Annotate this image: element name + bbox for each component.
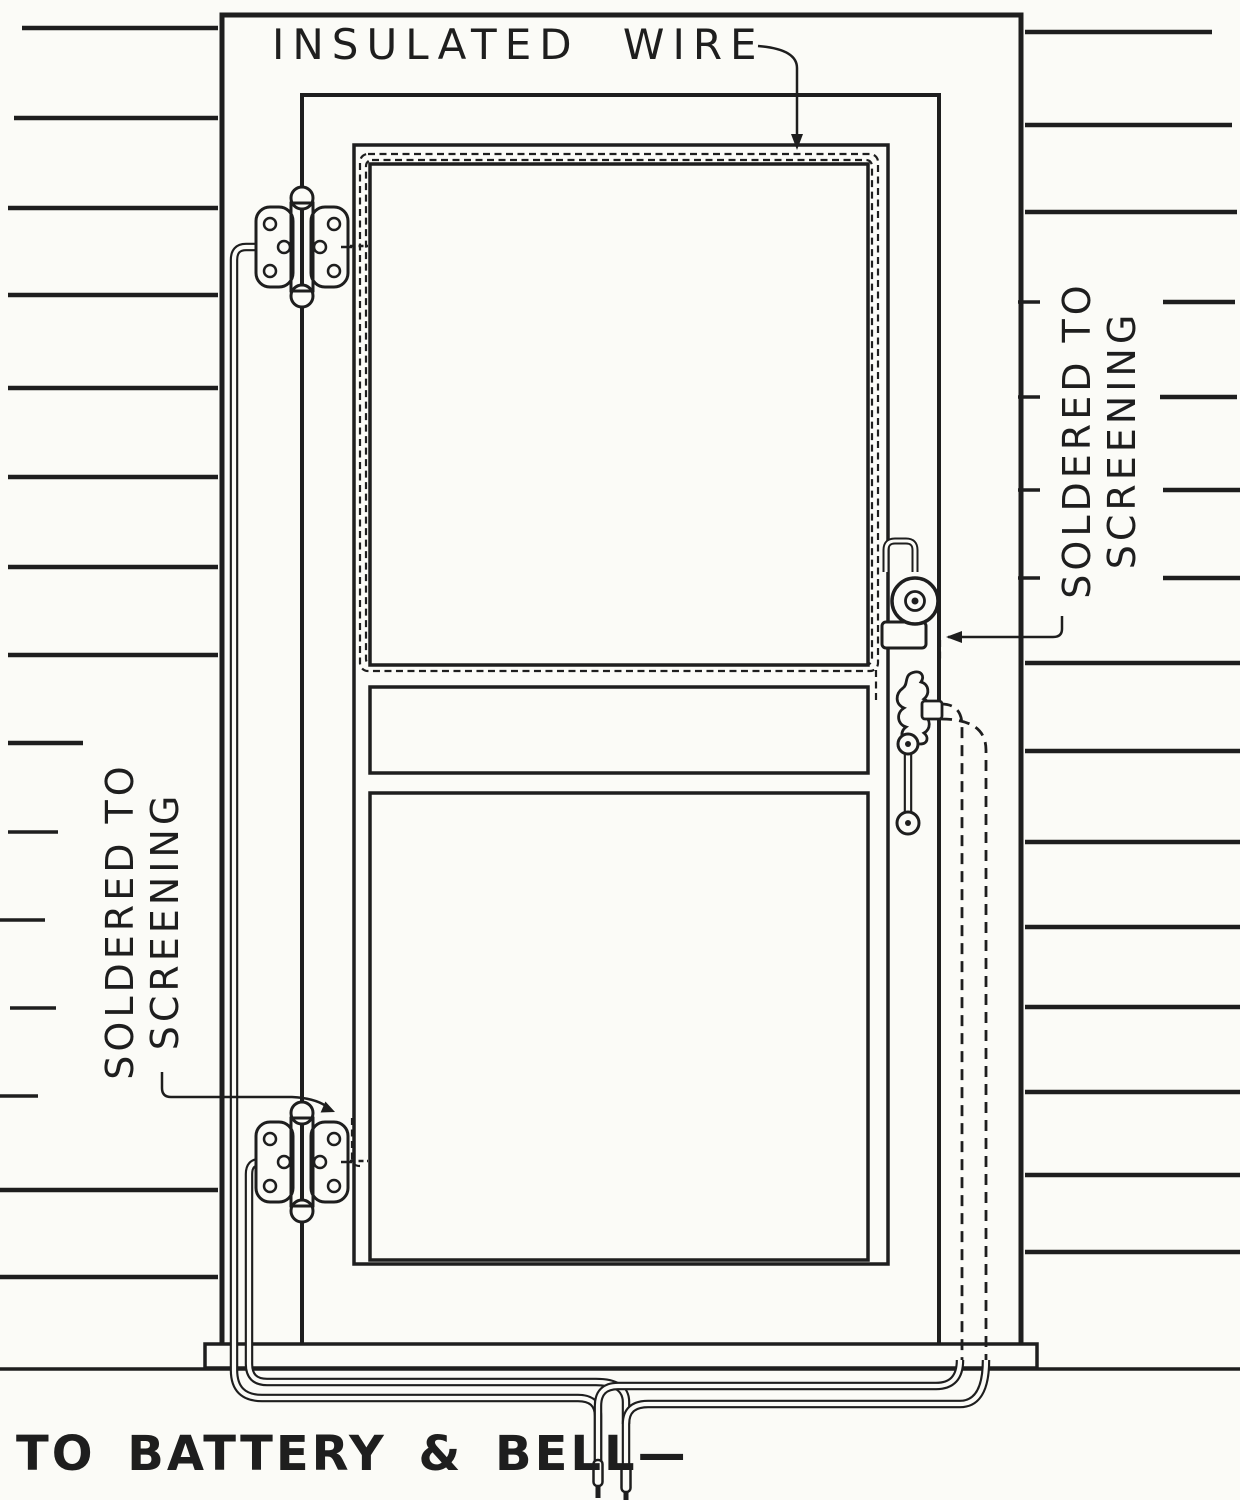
soldered-left-line1: SOLDERED TO bbox=[98, 691, 143, 1151]
screen-door-alarm-diagram: INSULATED WIRE SOLDERED TO SCREENING SOL… bbox=[0, 0, 1240, 1500]
to-battery-and-bell-label: TO BATTERY & BELL— bbox=[16, 1426, 689, 1482]
soldered-right-line2: SCREENING bbox=[1100, 210, 1145, 670]
door-sill bbox=[205, 1344, 1037, 1368]
door-slab bbox=[302, 95, 939, 1345]
insulated-wire-label: INSULATED WIRE bbox=[272, 20, 765, 69]
soldered-right-line1: SOLDERED TO bbox=[1055, 210, 1100, 670]
soldered-right-arrow bbox=[946, 616, 1062, 643]
soldered-left-line2: SCREENING bbox=[143, 691, 188, 1151]
